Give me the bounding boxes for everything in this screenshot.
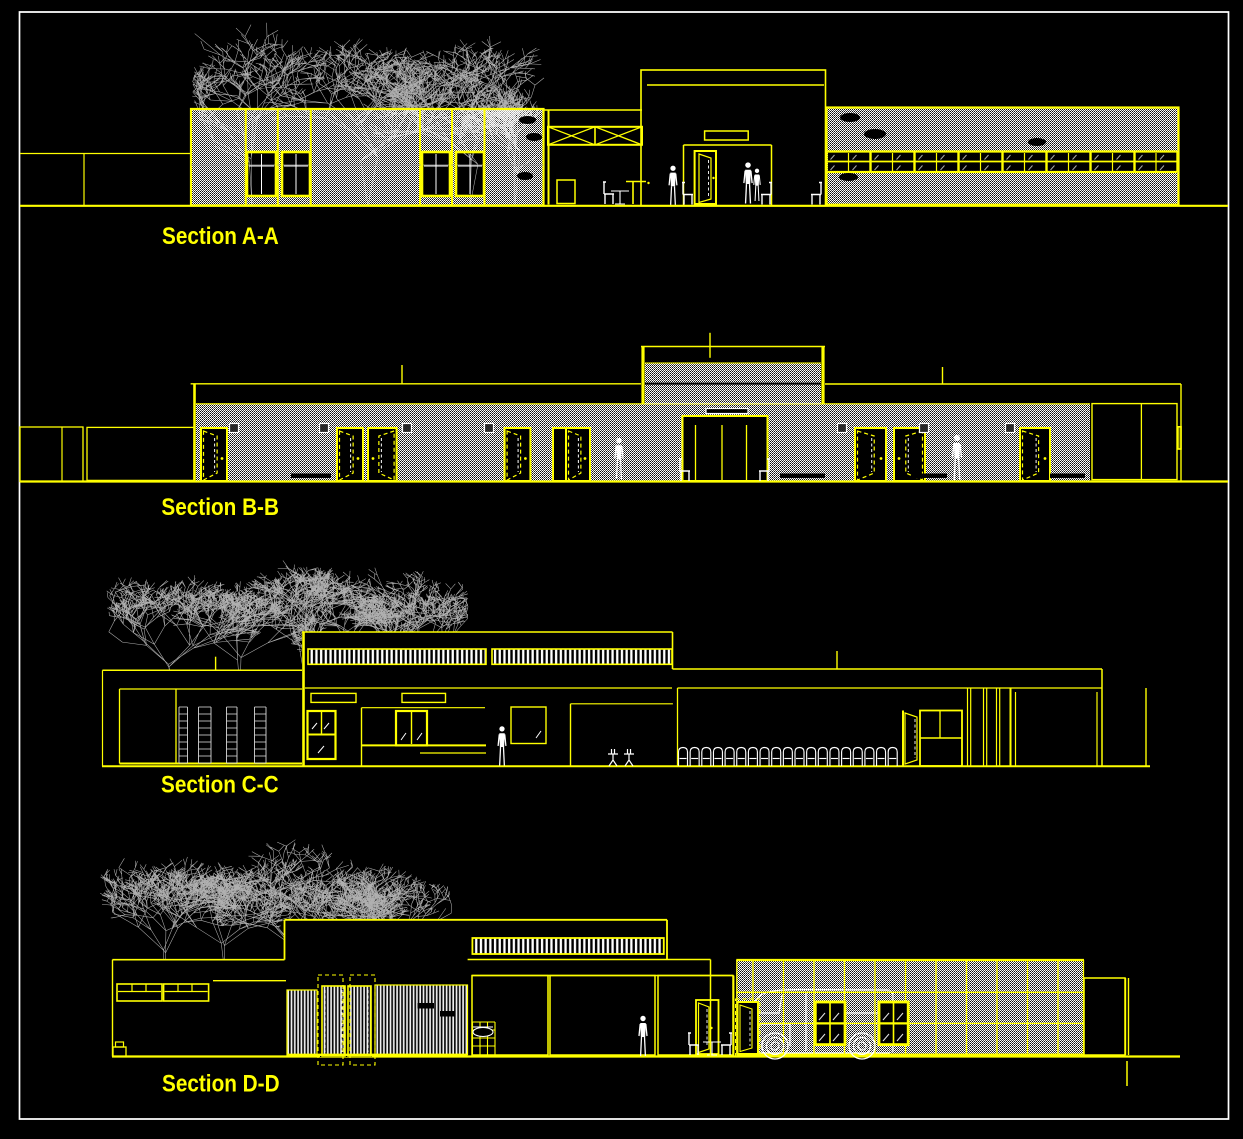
svg-text:Section C-C: Section C-C [161,771,279,798]
svg-text:Section A-A: Section A-A [162,222,279,249]
svg-text:Section B-B: Section B-B [161,493,279,520]
svg-text:Section D-D: Section D-D [162,1070,280,1097]
